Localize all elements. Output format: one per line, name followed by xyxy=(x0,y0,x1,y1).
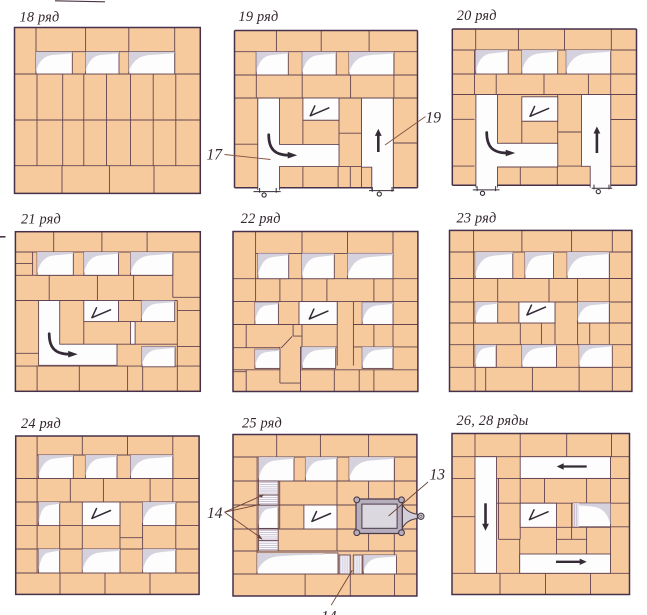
svg-text:14: 14 xyxy=(321,609,337,615)
svg-text:25 ряд: 25 ряд xyxy=(242,416,282,432)
svg-text:21 ряд: 21 ряд xyxy=(21,212,61,228)
svg-text:17: 17 xyxy=(207,146,224,163)
svg-text:23 ряд: 23 ряд xyxy=(457,210,497,226)
svg-text:20 ряд: 20 ряд xyxy=(457,8,497,24)
svg-text:19 ряд: 19 ряд xyxy=(239,9,279,25)
svg-text:13: 13 xyxy=(430,467,446,484)
svg-text:26, 28 ряды: 26, 28 ряды xyxy=(457,413,529,429)
svg-text:14: 14 xyxy=(207,505,223,522)
svg-text:19: 19 xyxy=(426,109,442,126)
svg-text:22 ряд: 22 ряд xyxy=(241,211,281,227)
svg-text:24 ряд: 24 ряд xyxy=(21,416,61,432)
svg-text:18 ряд: 18 ряд xyxy=(20,9,60,25)
